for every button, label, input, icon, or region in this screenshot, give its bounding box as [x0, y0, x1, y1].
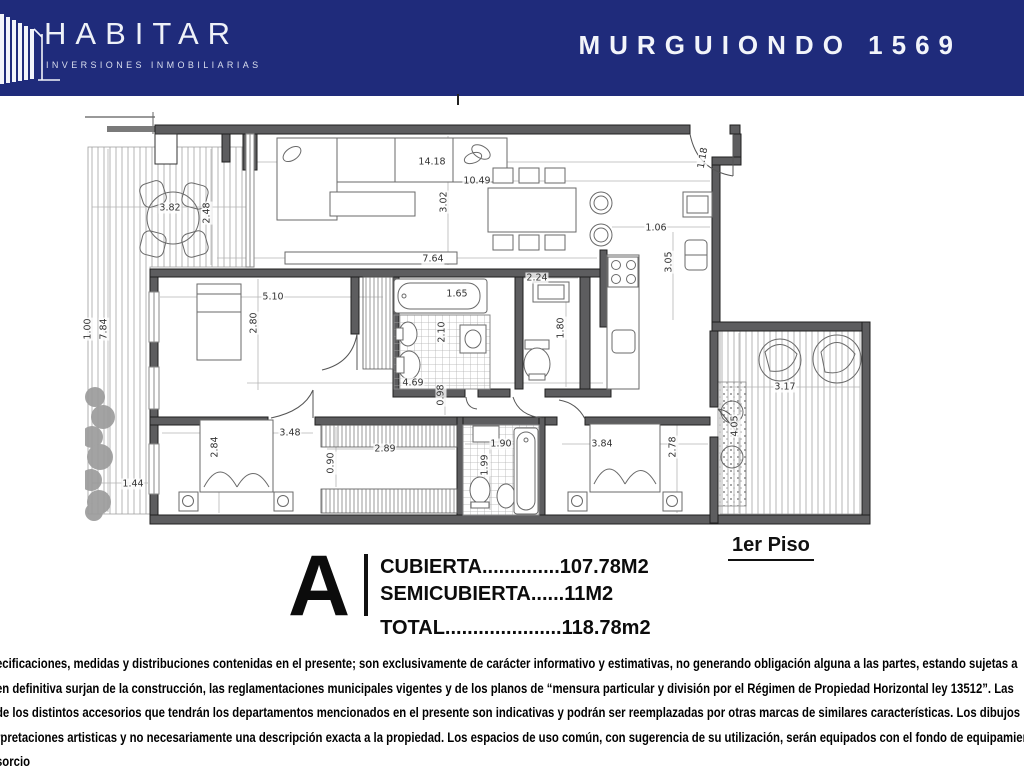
dimension-label: 4.05: [730, 414, 741, 437]
dimension-label: 3.84: [590, 439, 613, 450]
dimension-label: 3.02: [439, 190, 450, 213]
page: HABITAR INVERSIONES INMOBILIARIAS MURGUI…: [0, 0, 1024, 768]
dimension-label: 7.84: [99, 317, 110, 340]
dimension-label: 1.00: [83, 317, 94, 340]
dimension-label: 10.49: [462, 176, 491, 187]
dimension-label: 3.05: [664, 250, 675, 273]
dimension-label: 4.69: [401, 378, 424, 389]
dimension-label: 1.44: [121, 479, 144, 490]
dimension-label: 0.98: [436, 383, 447, 406]
floor-plan: 14.1810.493.027.641.181.063.053.822.481.…: [85, 112, 925, 542]
legend-line: CUBIERTA..............107.78M2: [380, 554, 650, 581]
dimension-label: 3.48: [278, 428, 301, 439]
dimension-label: 2.84: [210, 435, 221, 458]
dimension-label: 0.90: [326, 451, 337, 474]
dimension-label: 1.80: [556, 316, 567, 339]
dimension-label: 2.80: [249, 311, 260, 334]
brand-subtitle: INVERSIONES INMOBILIARIAS: [46, 60, 262, 70]
dimension-label: 2.78: [668, 435, 679, 458]
dimension-label: 2.10: [437, 320, 448, 343]
unit-letter: A: [288, 544, 350, 628]
project-title: MURGUIONDO 1569: [579, 30, 963, 61]
floor-label: 1er Piso: [728, 534, 814, 561]
disclaimer-line: sorcio: [0, 750, 1024, 768]
legend-lines: CUBIERTA..............107.78M2SEMICUBIER…: [380, 544, 650, 642]
disclaimer: ecificaciones, medidas y distribuciones …: [0, 652, 1024, 768]
bedroom2-furniture: [179, 420, 293, 511]
dimension-label: 7.64: [421, 254, 444, 265]
dimension-label: 5.10: [261, 292, 284, 303]
disclaimer-line: ecificaciones, medidas y distribuciones …: [0, 652, 1024, 677]
dimension-label: 2.48: [202, 201, 213, 224]
dimension-label: 1.06: [644, 223, 667, 234]
disclaimer-line: rpretaciones artisticas y no necesariame…: [0, 726, 1024, 751]
legend-line: TOTAL.....................118.78m2: [380, 615, 650, 642]
dimension-label: 14.18: [417, 157, 446, 168]
header: HABITAR INVERSIONES INMOBILIARIAS MURGUI…: [0, 0, 1024, 96]
dimension-label: 2.24: [525, 273, 548, 284]
extension-tick: [457, 94, 459, 105]
dimension-label: 3.82: [158, 203, 181, 214]
dimension-label: 1.99: [480, 453, 491, 476]
unit-legend: A CUBIERTA..............107.78M2SEMICUBI…: [288, 544, 651, 642]
legend-divider: [364, 554, 368, 616]
legend-line: SEMICUBIERTA......11M2: [380, 581, 650, 608]
bedroom1-furniture: [197, 284, 241, 360]
bedroom3-furniture: [568, 424, 682, 511]
dimension-label: 3.17: [773, 382, 796, 393]
dimension-label: 1.65: [445, 289, 468, 300]
brand-name: HABITAR: [44, 16, 239, 52]
disclaimer-line: en definitiva surjan de la construcción,…: [0, 677, 1024, 702]
dimension-label: 2.89: [373, 444, 396, 455]
dimension-label: 1.90: [489, 439, 512, 450]
disclaimer-line: de los distintos accesorios que tendrán …: [0, 701, 1024, 726]
